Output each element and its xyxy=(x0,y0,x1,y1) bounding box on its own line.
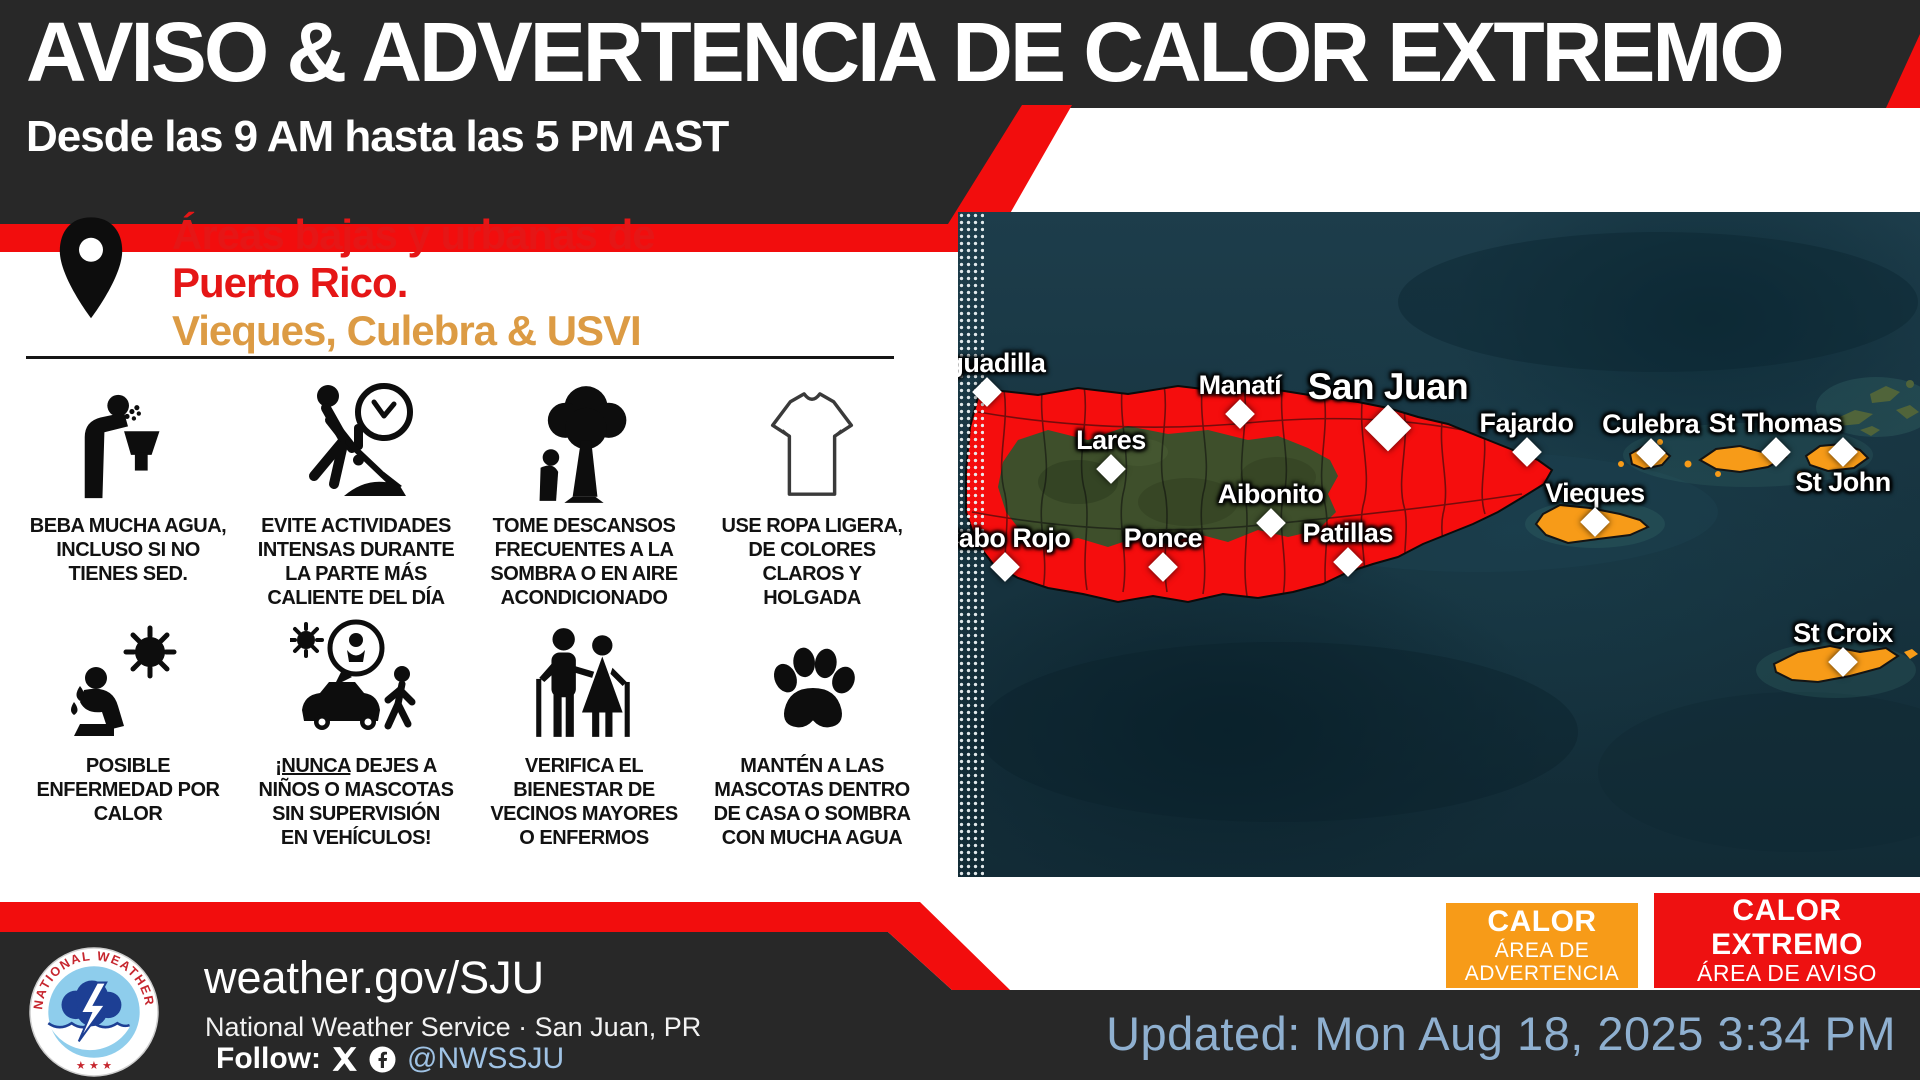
affected-areas-line2: Puerto Rico. xyxy=(172,259,655,307)
legend-warning-title1: CALOR xyxy=(1654,894,1920,928)
legend-advisory-sub1: ÁREA DE xyxy=(1446,939,1638,963)
tip-check-on-neighbors: VERIFICA EL BIENESTAR DE VECINOS MAYORES… xyxy=(470,614,698,850)
x-twitter-icon[interactable] xyxy=(332,1046,358,1072)
tip-caption: TOME DESCANSOS FRECUENTES A LA SOMBRA O … xyxy=(485,514,683,610)
tip-heat-illness: POSIBLE ENFERMEDAD POR CALOR xyxy=(14,614,242,850)
map-city-layer: AguadillaLaresManatíSan JuanFajardoCabo … xyxy=(958,212,1920,877)
legend-warning-sub: ÁREA DE AVISO xyxy=(1654,961,1920,987)
city-label: Cabo Rojo xyxy=(958,523,1070,554)
legend-advisory-title: CALOR xyxy=(1446,905,1638,939)
tip-never-leave-children-pets-in-vehicles: ¡NUNCA DEJES A NIÑOS O MASCOTAS SIN SUPE… xyxy=(242,614,470,850)
city-label: Aibonito xyxy=(1218,479,1323,510)
city-label: Culebra xyxy=(1602,409,1699,440)
paw-icon xyxy=(753,614,871,746)
city-marker-diamond xyxy=(1580,507,1610,537)
divider-line xyxy=(26,356,894,359)
city-marker-diamond xyxy=(1828,437,1858,467)
page-title: AVISO & ADVERTENCIA DE CALOR EXTREMO xyxy=(26,4,1916,101)
location-pin-icon xyxy=(55,213,127,354)
tip-avoid-strenuous-activity: EVITE ACTIVIDADES INTENSAS DURANTE LA PA… xyxy=(242,366,470,610)
drinking-fountain-icon xyxy=(69,366,187,506)
legend-heat-advisory: CALOR ÁREA DE ADVERTENCIA xyxy=(1446,903,1638,988)
city-marker-diamond xyxy=(1512,437,1542,467)
updated-timestamp: Updated: Mon Aug 18, 2025 3:34 PM xyxy=(1106,1006,1896,1061)
tree-shade-icon xyxy=(522,366,646,506)
city-label: Ponce xyxy=(1124,523,1203,554)
nws-logo-stars: ★ ★ ★ xyxy=(76,1060,112,1072)
website-link[interactable]: weather.gov/SJU xyxy=(204,952,544,1004)
city-label: St John xyxy=(1795,467,1891,498)
tip-caption: EVITE ACTIVIDADES INTENSAS DURANTE LA PA… xyxy=(257,514,455,610)
tshirt-icon xyxy=(753,366,871,506)
tip-take-breaks-in-shade: TOME DESCANSOS FRECUENTES A LA SOMBRA O … xyxy=(470,366,698,610)
heat-illness-icon xyxy=(68,614,188,746)
city-marker-diamond xyxy=(1761,437,1791,467)
affected-areas-line3: Vieques, Culebra & USVI xyxy=(172,307,655,355)
social-follow-row: Follow: @NWSSJU xyxy=(216,1042,564,1076)
affected-areas-line1: Áreas bajas y urbanas de xyxy=(172,211,655,259)
tip-caption: BEBA MUCHA AGUA, INCLUSO SI NO TIENES SE… xyxy=(29,514,227,586)
tip-caption-underlined: ¡NUNCA xyxy=(275,755,350,777)
city-marker-diamond xyxy=(1256,508,1286,538)
safety-tips-row-2: POSIBLE ENFERMEDAD POR CALOR xyxy=(14,614,926,850)
digging-worker-clock-icon xyxy=(292,366,420,506)
city-label: Vieques xyxy=(1545,478,1645,509)
city-marker-diamond xyxy=(1225,399,1255,429)
city-label: Aguadilla xyxy=(958,348,1045,379)
city-marker-diamond xyxy=(1096,454,1126,484)
follow-label: Follow: xyxy=(216,1042,321,1076)
tip-light-clothing: USE ROPA LIGERA, DE COLORES CLAROS Y HOL… xyxy=(698,366,926,610)
city-marker-diamond xyxy=(1148,552,1178,582)
page-subtitle: Desde las 9 AM hasta las 5 PM AST xyxy=(26,112,728,162)
facebook-icon[interactable] xyxy=(369,1046,396,1073)
affected-areas-heading: Áreas bajas y urbanas de Puerto Rico. Vi… xyxy=(172,211,655,355)
nws-logo: NATIONAL WEATHER SERVICE ★ ★ ★ xyxy=(28,946,160,1083)
tip-caption: POSIBLE ENFERMEDAD POR CALOR xyxy=(29,754,227,826)
city-label: Manatí xyxy=(1199,370,1282,401)
safety-tips-row-1: BEBA MUCHA AGUA, INCLUSO SI NO TIENES SE… xyxy=(14,366,926,610)
city-marker-diamond xyxy=(990,552,1020,582)
city-marker-diamond xyxy=(1333,547,1363,577)
city-marker-diamond xyxy=(1636,438,1666,468)
tip-caption: VERIFICA EL BIENESTAR DE VECINOS MAYORES… xyxy=(485,754,683,850)
elderly-couple-icon xyxy=(523,614,645,746)
city-marker-diamond xyxy=(1828,647,1858,677)
city-label: Fajardo xyxy=(1480,408,1574,439)
car-child-pet-icon xyxy=(290,614,422,746)
tip-caption: MANTÉN A LAS MASCOTAS DENTRO DE CASA O S… xyxy=(713,754,911,850)
legend-extreme-heat-warning: CALOR EXTREMO ÁREA DE AVISO xyxy=(1654,893,1920,988)
city-label: Patillas xyxy=(1302,518,1393,549)
social-handle[interactable]: @NWSSJU xyxy=(407,1042,564,1076)
tip-caption: USE ROPA LIGERA, DE COLORES CLAROS Y HOL… xyxy=(713,514,911,610)
legend-warning-title2: EXTREMO xyxy=(1654,928,1920,962)
tip-caption: ¡NUNCA DEJES A NIÑOS O MASCOTAS SIN SUPE… xyxy=(257,754,455,850)
tip-keep-pets-inside: MANTÉN A LAS MASCOTAS DENTRO DE CASA O S… xyxy=(698,614,926,850)
hazard-map: AguadillaLaresManatíSan JuanFajardoCabo … xyxy=(958,212,1920,877)
office-name: National Weather Service · San Juan, PR xyxy=(205,1012,701,1043)
city-label: San Juan xyxy=(1308,366,1469,408)
legend-advisory-sub2: ADVERTENCIA xyxy=(1446,962,1638,986)
city-marker-diamond xyxy=(972,377,1002,407)
city-label: Lares xyxy=(1076,425,1146,456)
city-label: St Thomas xyxy=(1709,408,1843,439)
heat-advisory-graphic: { "header": { "title": "AVISO & ADVERTEN… xyxy=(0,0,1920,1080)
city-marker-diamond xyxy=(1365,405,1412,452)
tip-drink-water: BEBA MUCHA AGUA, INCLUSO SI NO TIENES SE… xyxy=(14,366,242,610)
city-label: St Croix xyxy=(1793,618,1893,649)
